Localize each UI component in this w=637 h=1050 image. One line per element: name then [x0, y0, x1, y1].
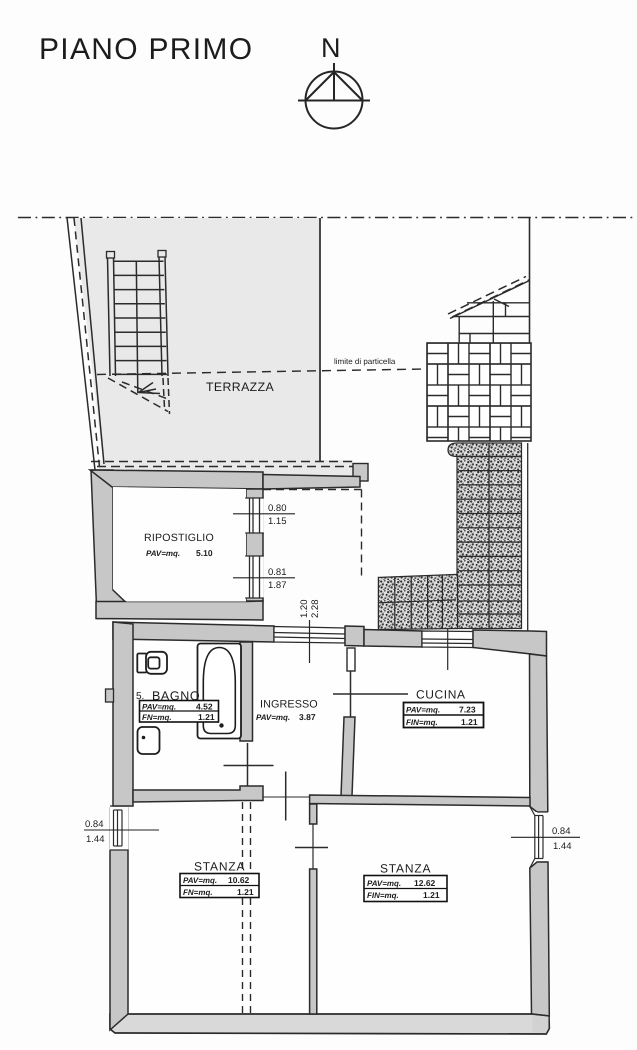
- svg-text:PAV=mq.: PAV=mq.: [367, 879, 401, 888]
- svg-text:1.21: 1.21: [423, 890, 440, 900]
- svg-text:3.87: 3.87: [299, 712, 316, 722]
- svg-text:TERRAZZA: TERRAZZA: [206, 380, 274, 394]
- svg-text:PAV=mq.: PAV=mq.: [183, 876, 217, 885]
- svg-text:INGRESSO: INGRESSO: [260, 699, 318, 711]
- svg-text:PAV=mq.: PAV=mq.: [256, 713, 290, 722]
- svg-text:PAV=mq.: PAV=mq.: [142, 703, 176, 712]
- svg-text:7.23: 7.23: [459, 705, 476, 715]
- svg-text:1.87: 1.87: [268, 580, 287, 591]
- svg-text:limite di particella: limite di particella: [334, 357, 396, 366]
- svg-text:N: N: [321, 33, 341, 63]
- svg-text:STANZA: STANZA: [194, 860, 245, 874]
- svg-text:10.62: 10.62: [228, 875, 250, 885]
- svg-text:4.52: 4.52: [196, 702, 213, 712]
- svg-text:RIPOSTIGLIO: RIPOSTIGLIO: [144, 532, 214, 544]
- svg-text:PAV=mq.: PAV=mq.: [406, 706, 440, 715]
- svg-text:PAV=mq.: PAV=mq.: [146, 549, 180, 558]
- svg-text:1.21: 1.21: [237, 887, 254, 897]
- svg-text:1.44: 1.44: [553, 841, 572, 852]
- svg-text:FN=mq.: FN=mq.: [142, 713, 172, 722]
- svg-text:0.84: 0.84: [552, 826, 571, 837]
- svg-text:CUCINA: CUCINA: [416, 688, 466, 702]
- svg-text:5.10: 5.10: [196, 548, 213, 558]
- svg-text:0.84: 0.84: [85, 819, 104, 830]
- svg-text:FN=mq.: FN=mq.: [183, 888, 213, 897]
- svg-text:0.80: 0.80: [268, 503, 287, 514]
- svg-text:FIN=mq.: FIN=mq.: [406, 718, 438, 727]
- svg-text:1.21: 1.21: [461, 717, 478, 727]
- svg-text:12.62: 12.62: [414, 878, 436, 888]
- svg-text:1.20: 1.20: [299, 600, 310, 619]
- svg-text:PIANO PRIMO: PIANO PRIMO: [39, 33, 253, 66]
- svg-text:FIN=mq.: FIN=mq.: [367, 891, 399, 900]
- svg-text:2.28: 2.28: [310, 600, 321, 619]
- svg-text:1.15: 1.15: [268, 516, 287, 527]
- svg-text:1.21: 1.21: [198, 712, 215, 722]
- svg-text:0.81: 0.81: [268, 567, 287, 578]
- svg-text:1.44: 1.44: [86, 834, 105, 845]
- svg-text:STANZA: STANZA: [380, 862, 431, 876]
